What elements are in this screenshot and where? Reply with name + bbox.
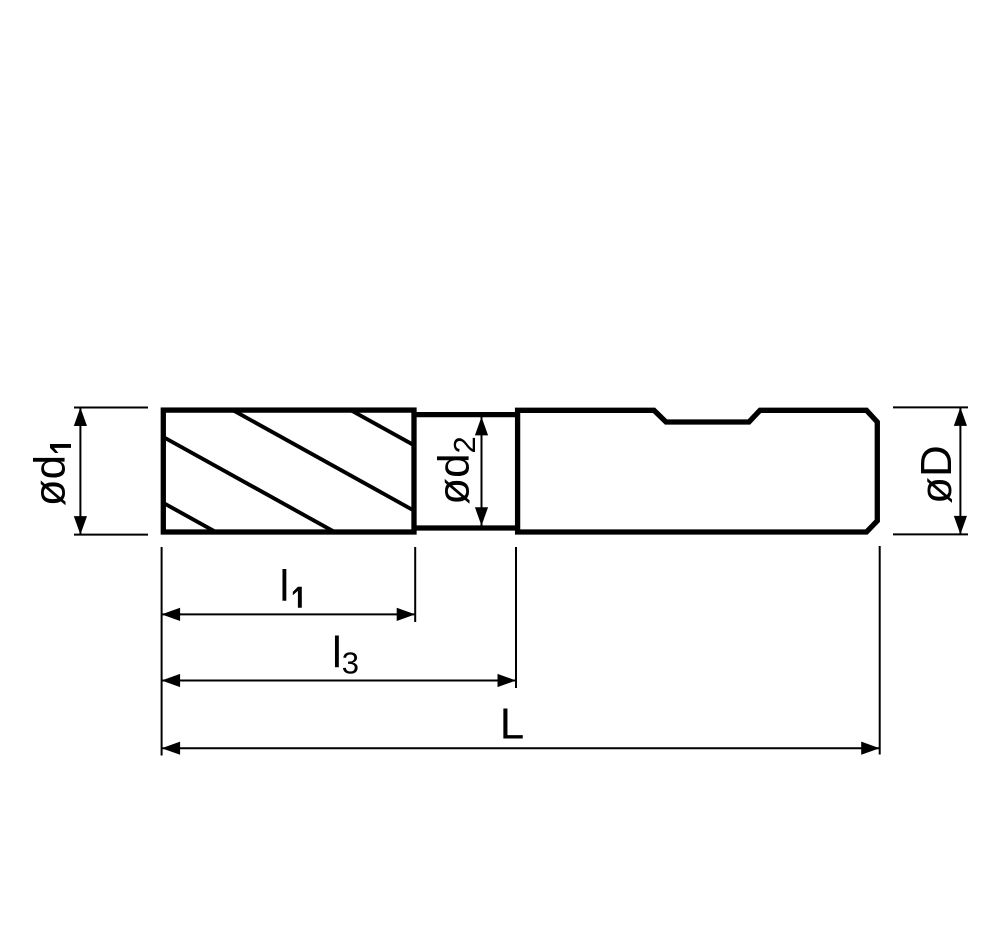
svg-text:L: L <box>500 700 524 749</box>
svg-text:øD: øD <box>912 445 961 504</box>
